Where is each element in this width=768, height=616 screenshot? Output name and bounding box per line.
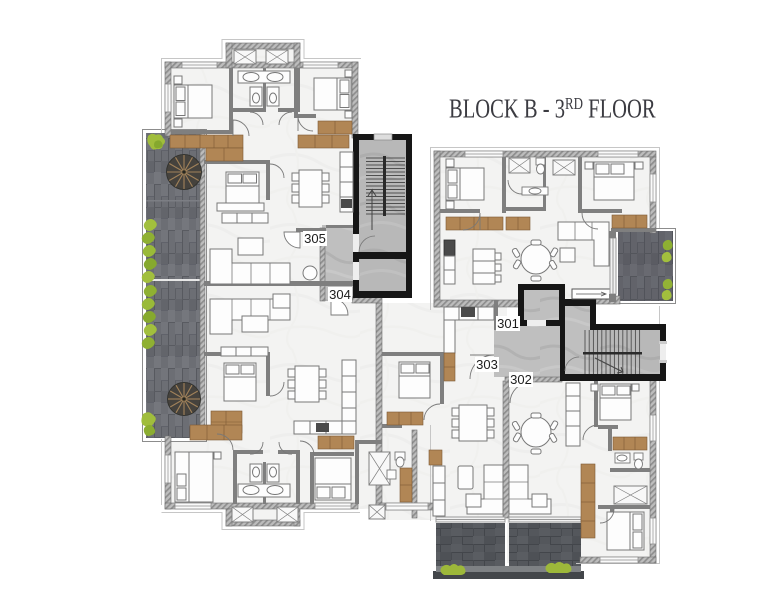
svg-text:BLOCK B - 3RD FLOOR: BLOCK B - 3RD FLOOR — [449, 95, 656, 124]
svg-text:303: 303 — [476, 357, 498, 372]
svg-text:301: 301 — [497, 316, 519, 331]
svg-text:305: 305 — [304, 231, 326, 246]
svg-text:302: 302 — [510, 372, 532, 387]
svg-text:304: 304 — [329, 287, 351, 302]
